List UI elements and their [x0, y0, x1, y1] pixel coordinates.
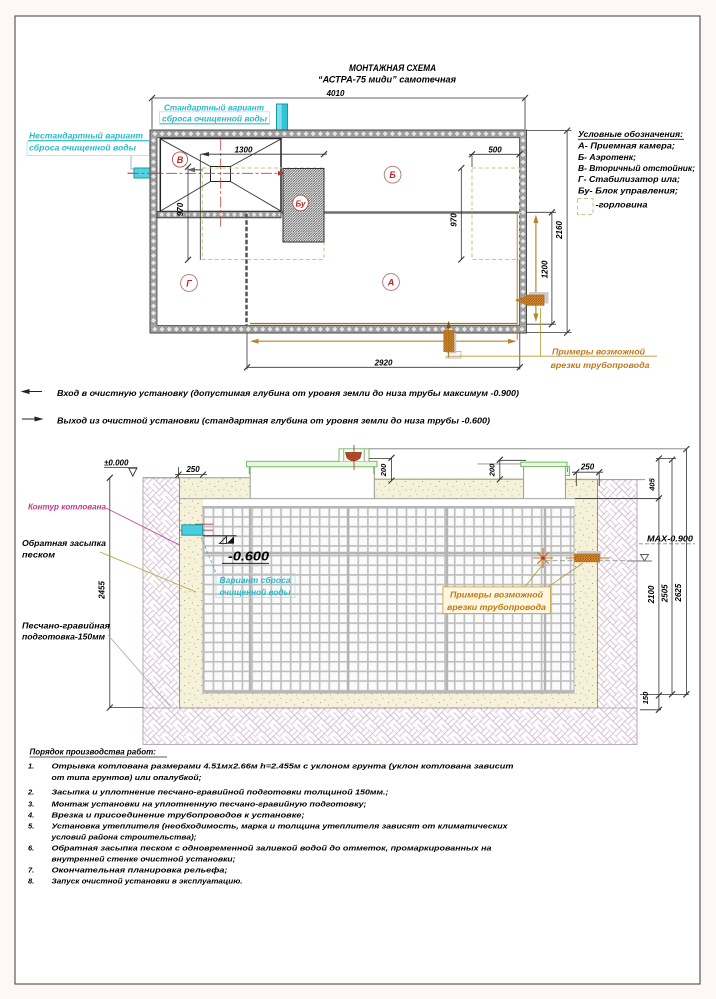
svg-text:Порядок производства работ:: Порядок производства работ: — [30, 748, 157, 757]
svg-text:200: 200 — [379, 463, 388, 477]
svg-text:Монтаж установки на уплотненну: Монтаж установки на уплотненную песчано-… — [52, 799, 368, 808]
svg-text:В: В — [177, 155, 184, 165]
svg-text:“АСТРА-75 миди” самотечная: “АСТРА-75 миди” самотечная — [318, 75, 456, 86]
svg-text:Г: Г — [186, 279, 192, 289]
svg-text:Б: Б — [389, 170, 396, 180]
svg-text:сброса очищенной воды: сброса очищенной воды — [29, 144, 136, 153]
svg-text:1200: 1200 — [541, 260, 550, 278]
svg-text:Выход из очистной установки (с: Выход из очистной установки (стандартная… — [57, 416, 490, 425]
svg-text:Окончательная планировка релье: Окончательная планировка рельефа; — [52, 865, 229, 874]
svg-text:Врезка и присоединение трубопр: Врезка и присоединение трубопроводов к у… — [52, 810, 306, 819]
svg-text:Установка утеплителя (необходи: Установка утеплителя (необходимость, мар… — [52, 821, 509, 830]
svg-text:Обратная засыпка песком с одно: Обратная засыпка песком с одновременной … — [52, 843, 492, 852]
svg-text:Стандартный вариант: Стандартный вариант — [164, 104, 264, 113]
svg-text:3.: 3. — [28, 799, 34, 808]
svg-text:2.: 2. — [27, 788, 34, 797]
svg-text:Примеры возможной: Примеры возможной — [552, 347, 645, 356]
svg-text:В- Вторичный отстойник;: В- Вторичный отстойник; — [578, 163, 695, 173]
svg-text:8.: 8. — [28, 876, 34, 885]
svg-text:Вариант сброса: Вариант сброса — [220, 576, 292, 585]
svg-text:±0.000: ±0.000 — [104, 458, 129, 467]
svg-text:внутренней стенке очистной уст: внутренней стенке очистной установки; — [52, 854, 237, 863]
svg-text:Обратная засыпка: Обратная засыпка — [22, 539, 107, 548]
svg-text:970: 970 — [449, 213, 458, 227]
svg-text:405: 405 — [648, 477, 657, 491]
svg-text:5.: 5. — [28, 821, 34, 830]
svg-text:Засыпка и уплотнение песчано-г: Засыпка и уплотнение песчано-гравийной п… — [52, 788, 390, 797]
svg-text:970: 970 — [176, 202, 185, 216]
svg-text:1300: 1300 — [235, 146, 253, 155]
svg-text:Вход в очистную установку (доп: Вход в очистную установку (допустимая гл… — [57, 389, 519, 398]
svg-text:4010: 4010 — [326, 89, 345, 98]
svg-text:2505: 2505 — [660, 584, 669, 603]
svg-text:Условные обозначения:: Условные обозначения: — [578, 129, 683, 139]
svg-text:2160: 2160 — [555, 221, 564, 240]
svg-text:Запуск очистной установки в эк: Запуск очистной установки в эксплуатацию… — [52, 876, 243, 885]
svg-text:250: 250 — [580, 462, 595, 471]
svg-text:Бу: Бу — [295, 200, 306, 209]
svg-text:6.: 6. — [28, 843, 34, 852]
svg-text:2455: 2455 — [98, 581, 107, 600]
svg-text:-0.600: -0.600 — [228, 549, 270, 564]
svg-text:150: 150 — [641, 691, 650, 704]
svg-text:сброса очищенной воды: сброса очищенной воды — [162, 115, 267, 124]
svg-text:очищенной воды: очищенной воды — [220, 588, 291, 597]
svg-text:песком: песком — [22, 551, 55, 560]
svg-text:7.: 7. — [28, 865, 34, 874]
svg-text:Б- Аэротенк;: Б- Аэротенк; — [578, 152, 636, 162]
svg-text:Г- Стабилизатор ила;: Г- Стабилизатор ила; — [578, 174, 680, 184]
svg-text:условий района строительства);: условий района строительства); — [50, 832, 197, 841]
svg-text:Примеры возможной: Примеры возможной — [450, 591, 543, 600]
svg-text:подготовка-150мм: подготовка-150мм — [22, 633, 105, 642]
svg-text:200: 200 — [487, 463, 496, 477]
svg-text:Контур котлована: Контур котлована — [28, 503, 107, 512]
svg-text:Нестандартный вариант: Нестандартный вариант — [29, 132, 143, 141]
svg-text:4.: 4. — [27, 810, 34, 819]
svg-text:Бу- Блок управления;: Бу- Блок управления; — [578, 185, 678, 195]
svg-text:500: 500 — [488, 146, 502, 155]
svg-text:от типа грунтов) или опалубкой: от типа грунтов) или опалубкой; — [52, 773, 203, 782]
svg-text:2100: 2100 — [647, 585, 656, 604]
svg-text:Песчано-гравийная: Песчано-гравийная — [22, 622, 110, 631]
svg-text:1.: 1. — [28, 761, 34, 770]
svg-text:2920: 2920 — [374, 358, 393, 367]
svg-text:2625: 2625 — [674, 583, 683, 602]
svg-text:врезки трубопровода: врезки трубопровода — [551, 361, 651, 370]
svg-text:-горловина: -горловина — [596, 200, 648, 210]
svg-text:врезки трубопровода: врезки трубопровода — [447, 603, 547, 612]
svg-text:Отрывка котлована размерами 4.: Отрывка котлована размерами 4.51мх2.66м … — [52, 761, 514, 770]
svg-text:МОНТАЖНАЯ СХЕМА: МОНТАЖНАЯ СХЕМА — [349, 63, 436, 74]
svg-text:250: 250 — [185, 465, 200, 474]
svg-text:А: А — [387, 278, 395, 288]
svg-text:А- Приемная камера;: А- Приемная камера; — [577, 141, 675, 151]
